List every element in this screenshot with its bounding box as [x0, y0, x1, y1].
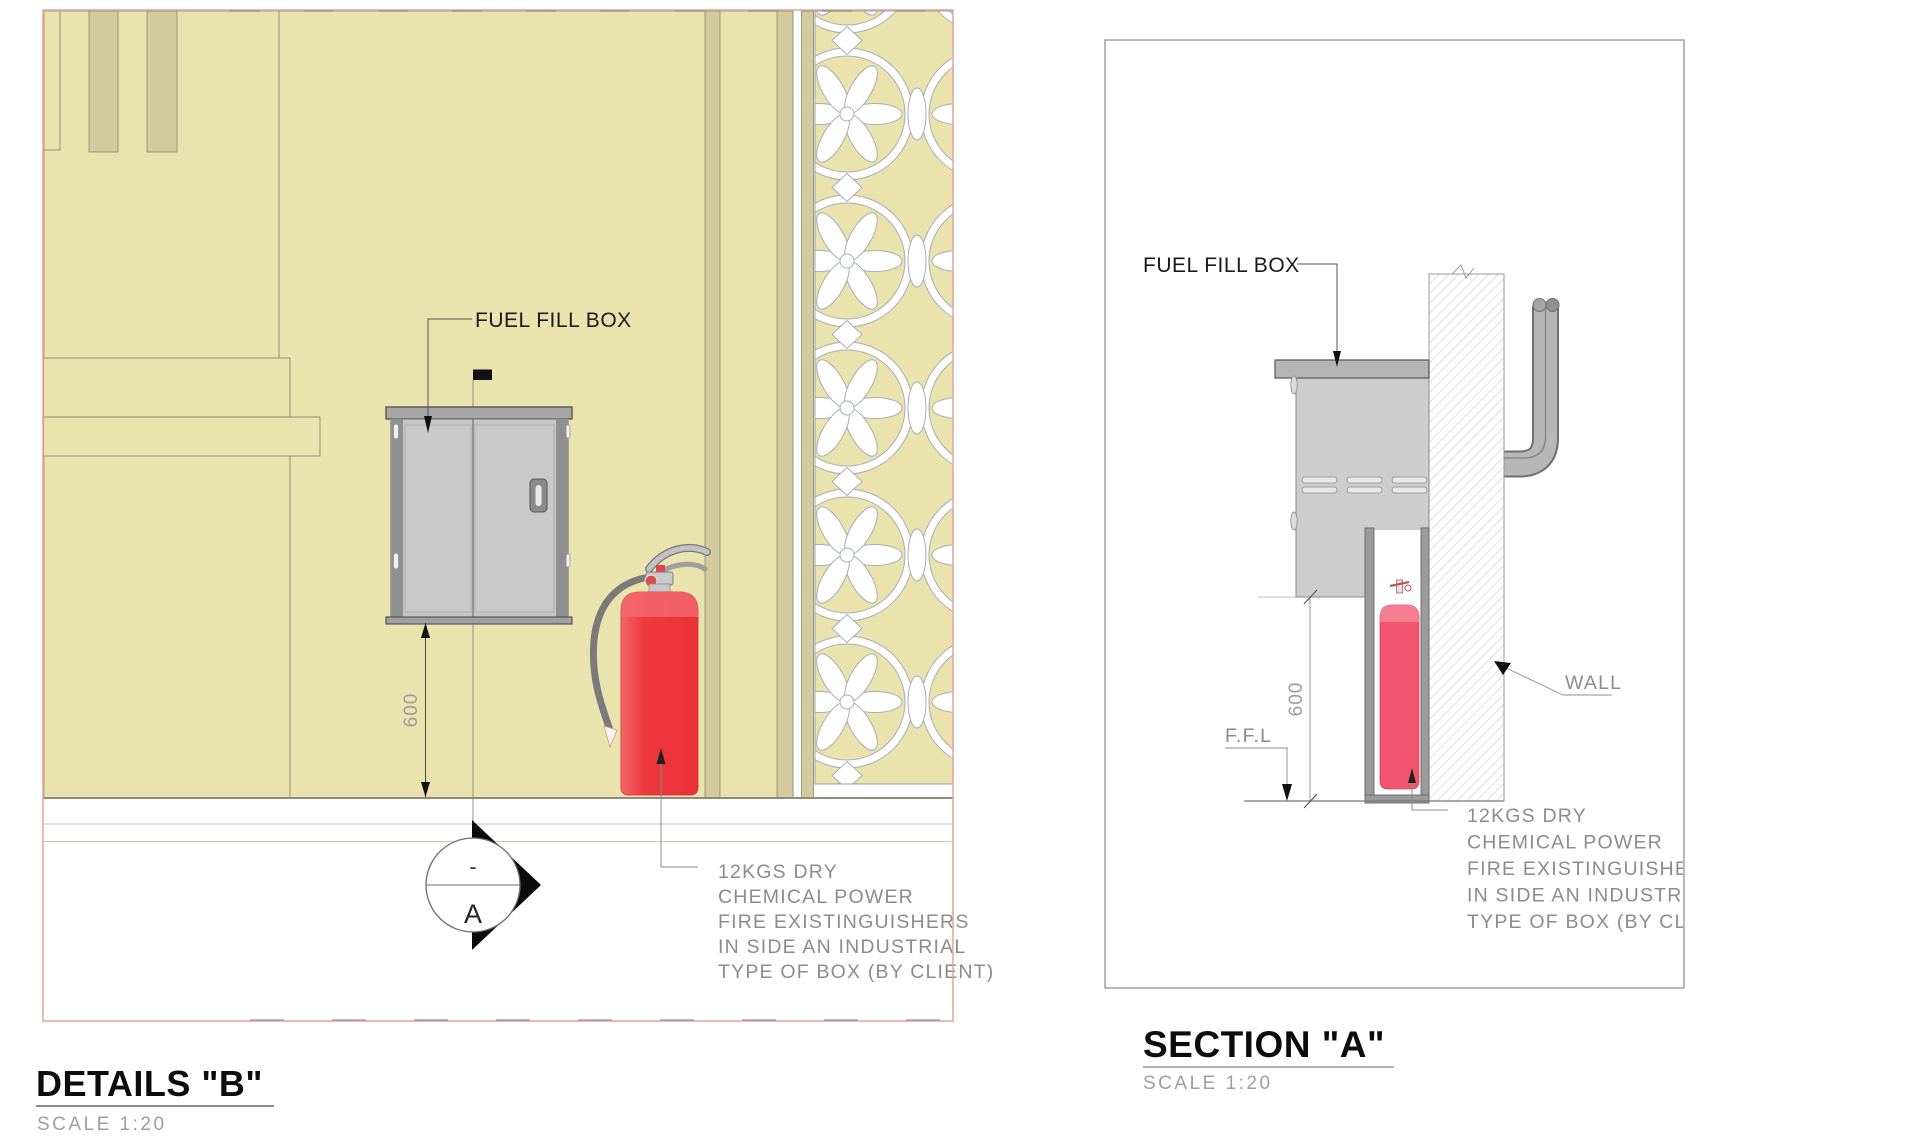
- wall-hatch: [1429, 274, 1504, 801]
- extinguisher-body: [621, 592, 698, 795]
- note-line: TYPE OF BOX (BY CLIENT): [1467, 911, 1743, 933]
- note-line: IN SIDE AN INDUSTRIAL: [1467, 885, 1715, 907]
- cad-canvas: FUEL FILL BOX 600 12KGS DRY: [0, 0, 1920, 1147]
- section-a-scale: SCALE 1:20: [1143, 1073, 1273, 1094]
- extinguisher-valve-cap: [656, 565, 665, 572]
- section-cut-mark: [473, 370, 492, 381]
- note-line: 12KGS DRY: [1467, 805, 1587, 827]
- wall-band-upper: [44, 358, 291, 417]
- cabinet-door-left: [405, 425, 471, 612]
- wall-label: WALL: [1565, 672, 1622, 694]
- dimension-600-text: 600: [401, 693, 422, 728]
- details-b-title: DETAILS "B": [36, 1063, 263, 1104]
- section-extinguisher-valve: [1397, 580, 1403, 593]
- section-a-title: SECTION "A": [1143, 1024, 1385, 1065]
- note-line: IN SIDE AN INDUSTRIAL: [718, 936, 966, 958]
- section-marker-number: -: [469, 854, 476, 879]
- section-a-drawing: 600 F.F.L WALL FUEL FILL BOX: [1105, 40, 1743, 1094]
- extinguisher-shoulder: [621, 592, 698, 617]
- section-fuel-fill-box-label: FUEL FILL BOX: [1143, 254, 1300, 277]
- cabinet-handle-slot: [536, 485, 542, 506]
- section-marker-letter: A: [464, 899, 482, 929]
- note-line: 12KGS DRY: [718, 861, 838, 883]
- details-b-scale: SCALE 1:20: [37, 1114, 167, 1135]
- section-box-cap: [1275, 360, 1429, 378]
- cabinet-door-right: [475, 425, 554, 612]
- note-line: FIRE EXISTINGUISHERS: [1467, 858, 1719, 880]
- cabinet-right-frame: [556, 419, 568, 617]
- wall-band-lower: [44, 417, 321, 456]
- floor-lines: [43, 798, 953, 842]
- details-b-drawing: FUEL FILL BOX 600 12KGS DRY: [36, 10, 994, 1135]
- fuel-fill-box-cabinet: [386, 407, 572, 624]
- section-marker-bubble: - A: [426, 820, 541, 950]
- section-dimension-600-text: 600: [1286, 682, 1307, 717]
- note-line: FIRE EXISTINGUISHERS: [718, 911, 970, 933]
- fuel-fill-box-label: FUEL FILL BOX: [475, 309, 632, 332]
- drawing-sheet: FUEL FILL BOX 600 12KGS DRY: [0, 0, 1920, 1147]
- section-extinguisher-body: [1380, 605, 1419, 789]
- ffl-label: F.F.L: [1225, 725, 1272, 747]
- note-line: CHEMICAL POWER: [718, 886, 914, 908]
- section-extinguisher: [1380, 580, 1419, 789]
- decorative-screen-panel: [815, 11, 953, 784]
- section-extinguisher-shoulder: [1380, 605, 1419, 622]
- cabinet-left-frame: [391, 419, 403, 617]
- note-line: CHEMICAL POWER: [1467, 832, 1663, 854]
